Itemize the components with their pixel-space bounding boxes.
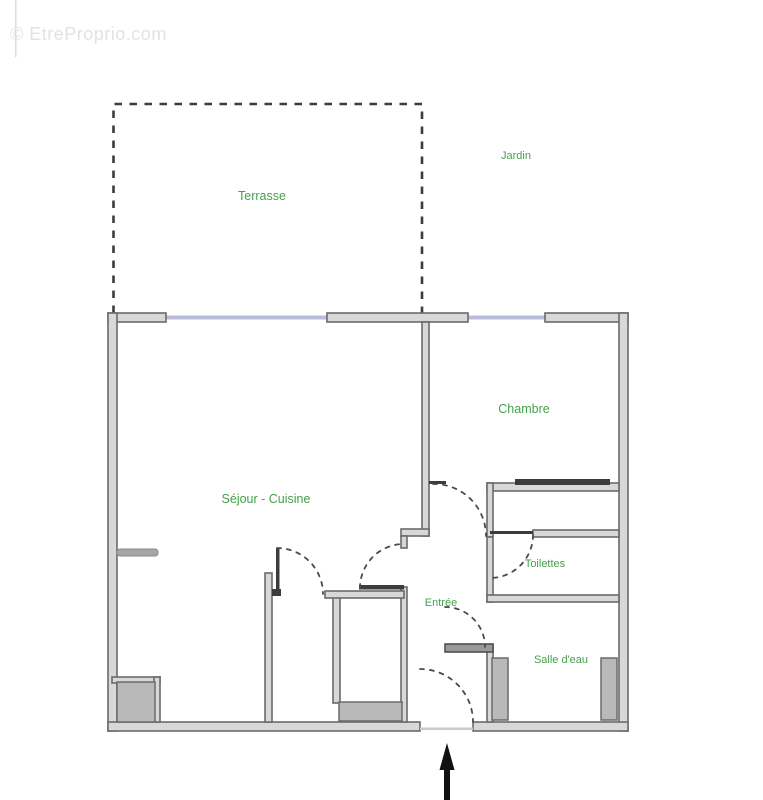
door-arc-cuisine — [277, 548, 323, 594]
window — [468, 316, 545, 320]
fixture-sejour-corner — [117, 682, 155, 722]
floor-plan-svg: © EtreProprio.com — [0, 0, 763, 800]
label-jardin: Jardin — [501, 150, 531, 162]
wall-segment — [619, 313, 628, 731]
door-arc-toilettes — [490, 535, 533, 578]
outer-walls — [108, 313, 628, 731]
wall-segment — [487, 537, 493, 602]
label-toilettes: Toilettes — [525, 558, 566, 570]
wall-segment — [545, 313, 628, 322]
closet-sliding-door-bar — [515, 479, 610, 485]
wall-segment — [108, 313, 117, 731]
door-leaf — [276, 548, 280, 591]
wall-segment — [473, 722, 628, 731]
door-arc-front-door — [420, 669, 473, 722]
fixture-bathroom-left — [492, 658, 508, 720]
door-arc-chambre — [433, 484, 486, 536]
wall-segment — [325, 591, 404, 598]
entrance-arrow — [440, 743, 455, 800]
label-salle-deau: Salle d'eau — [534, 654, 588, 666]
wall-segment — [327, 313, 468, 322]
door-leaf-foot — [272, 589, 281, 596]
window — [166, 316, 327, 320]
wall-segment — [487, 595, 619, 602]
fixtures — [117, 658, 617, 722]
fixture-bathroom-right — [601, 658, 617, 720]
wall-segment — [401, 529, 429, 536]
wall-segment — [333, 595, 340, 703]
door-leaf — [359, 585, 404, 590]
floor-plan-image: © EtreProprio.com — [0, 0, 763, 800]
watermark-text: © EtreProprio.com — [10, 24, 167, 44]
wall-segment — [422, 322, 429, 536]
door-arc-salle-deau — [445, 607, 485, 647]
door-leaf — [490, 531, 533, 534]
wall-segment — [265, 573, 272, 722]
wall-segment — [108, 722, 420, 731]
label-terrasse: Terrasse — [238, 189, 286, 203]
door-arc-entree — [360, 544, 404, 588]
terrasse-dashed-outline — [114, 104, 423, 313]
wall-segment — [487, 483, 493, 537]
entrance-threshold — [420, 728, 473, 731]
wall-segment — [401, 536, 407, 548]
label-chambre: Chambre — [498, 402, 549, 416]
label-sejour-cuisine: Séjour - Cuisine — [222, 492, 311, 506]
radiator-stub — [117, 549, 158, 556]
fixture-kitchen-counter — [339, 702, 402, 721]
label-entree: Entrée — [425, 597, 457, 609]
wall-segment — [533, 530, 619, 537]
